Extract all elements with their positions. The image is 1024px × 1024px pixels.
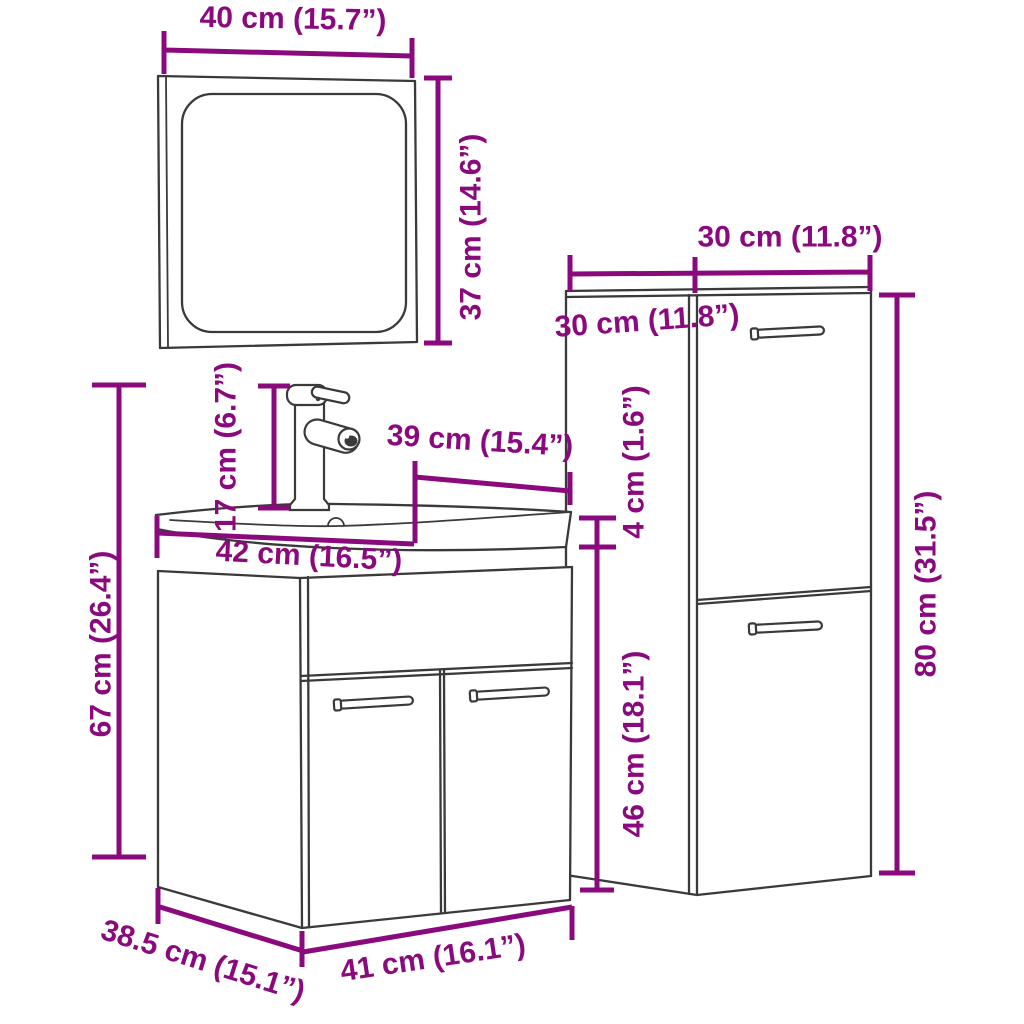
handle-cap [751, 328, 759, 339]
faucet-spout-highlight [345, 434, 349, 438]
wall-cabinet [566, 287, 871, 895]
dim-label-vanity-depth: 38.5 cm (15.1”) [97, 913, 309, 1008]
dim-mirror-width: 40 cm (15.7”) [164, 1, 412, 78]
handle-cap [749, 623, 757, 634]
dimension-diagram: 40 cm (15.7”) 37 cm (14.6”) 17 cm (6.7”)… [0, 0, 1024, 1024]
faucet [287, 385, 361, 510]
diagram-canvas: 40 cm (15.7”) 37 cm (14.6”) 17 cm (6.7”)… [0, 0, 1024, 1024]
handle-cap [334, 699, 342, 710]
vanity-door-gap-2 [444, 670, 445, 913]
vanity-cabinet [158, 567, 572, 928]
dim-label-vanity-width: 41 cm (16.1”) [338, 928, 528, 988]
dim-wall-cabinet-width: 30 cm (11.8”) [570, 221, 883, 294]
dim-label-mirror-width: 40 cm (15.7”) [199, 1, 386, 37]
dimension-line [164, 31, 412, 78]
faucet-lever-pin [316, 397, 320, 401]
handle-cap [470, 690, 478, 701]
mirror-panel [158, 76, 417, 348]
dim-label-wall-cabinet-width: 30 cm (11.8”) [697, 221, 882, 254]
dimension-line [424, 78, 452, 343]
vanity-cabinet-body [158, 567, 572, 928]
dim-label-faucet-height: 17 cm (6.7”) [210, 362, 243, 532]
dim-label-vanity-cabinet-height: 46 cm (18.1”) [618, 651, 651, 838]
dim-label-basin-width: 39 cm (15.4”) [386, 419, 574, 463]
vanity-door-gap [440, 670, 441, 913]
dim-mirror-height: 37 cm (14.6”) [424, 78, 488, 343]
mirror [158, 76, 417, 348]
dim-wall-cabinet-height: 80 cm (31.5”) [879, 295, 943, 873]
dimension-line [258, 386, 290, 508]
dim-label-vanity-total-height: 67 cm (26.4”) [85, 551, 118, 738]
vanity-front-left-edge-2 [308, 577, 309, 927]
dim-label-mirror-height: 37 cm (14.6”) [455, 134, 488, 321]
dim-label-basin-height: 4 cm (1.6”) [618, 385, 651, 538]
dim-vanity-total-height: 67 cm (26.4”) [85, 385, 147, 857]
dim-label-wall-cabinet-height: 80 cm (31.5”) [910, 491, 943, 678]
